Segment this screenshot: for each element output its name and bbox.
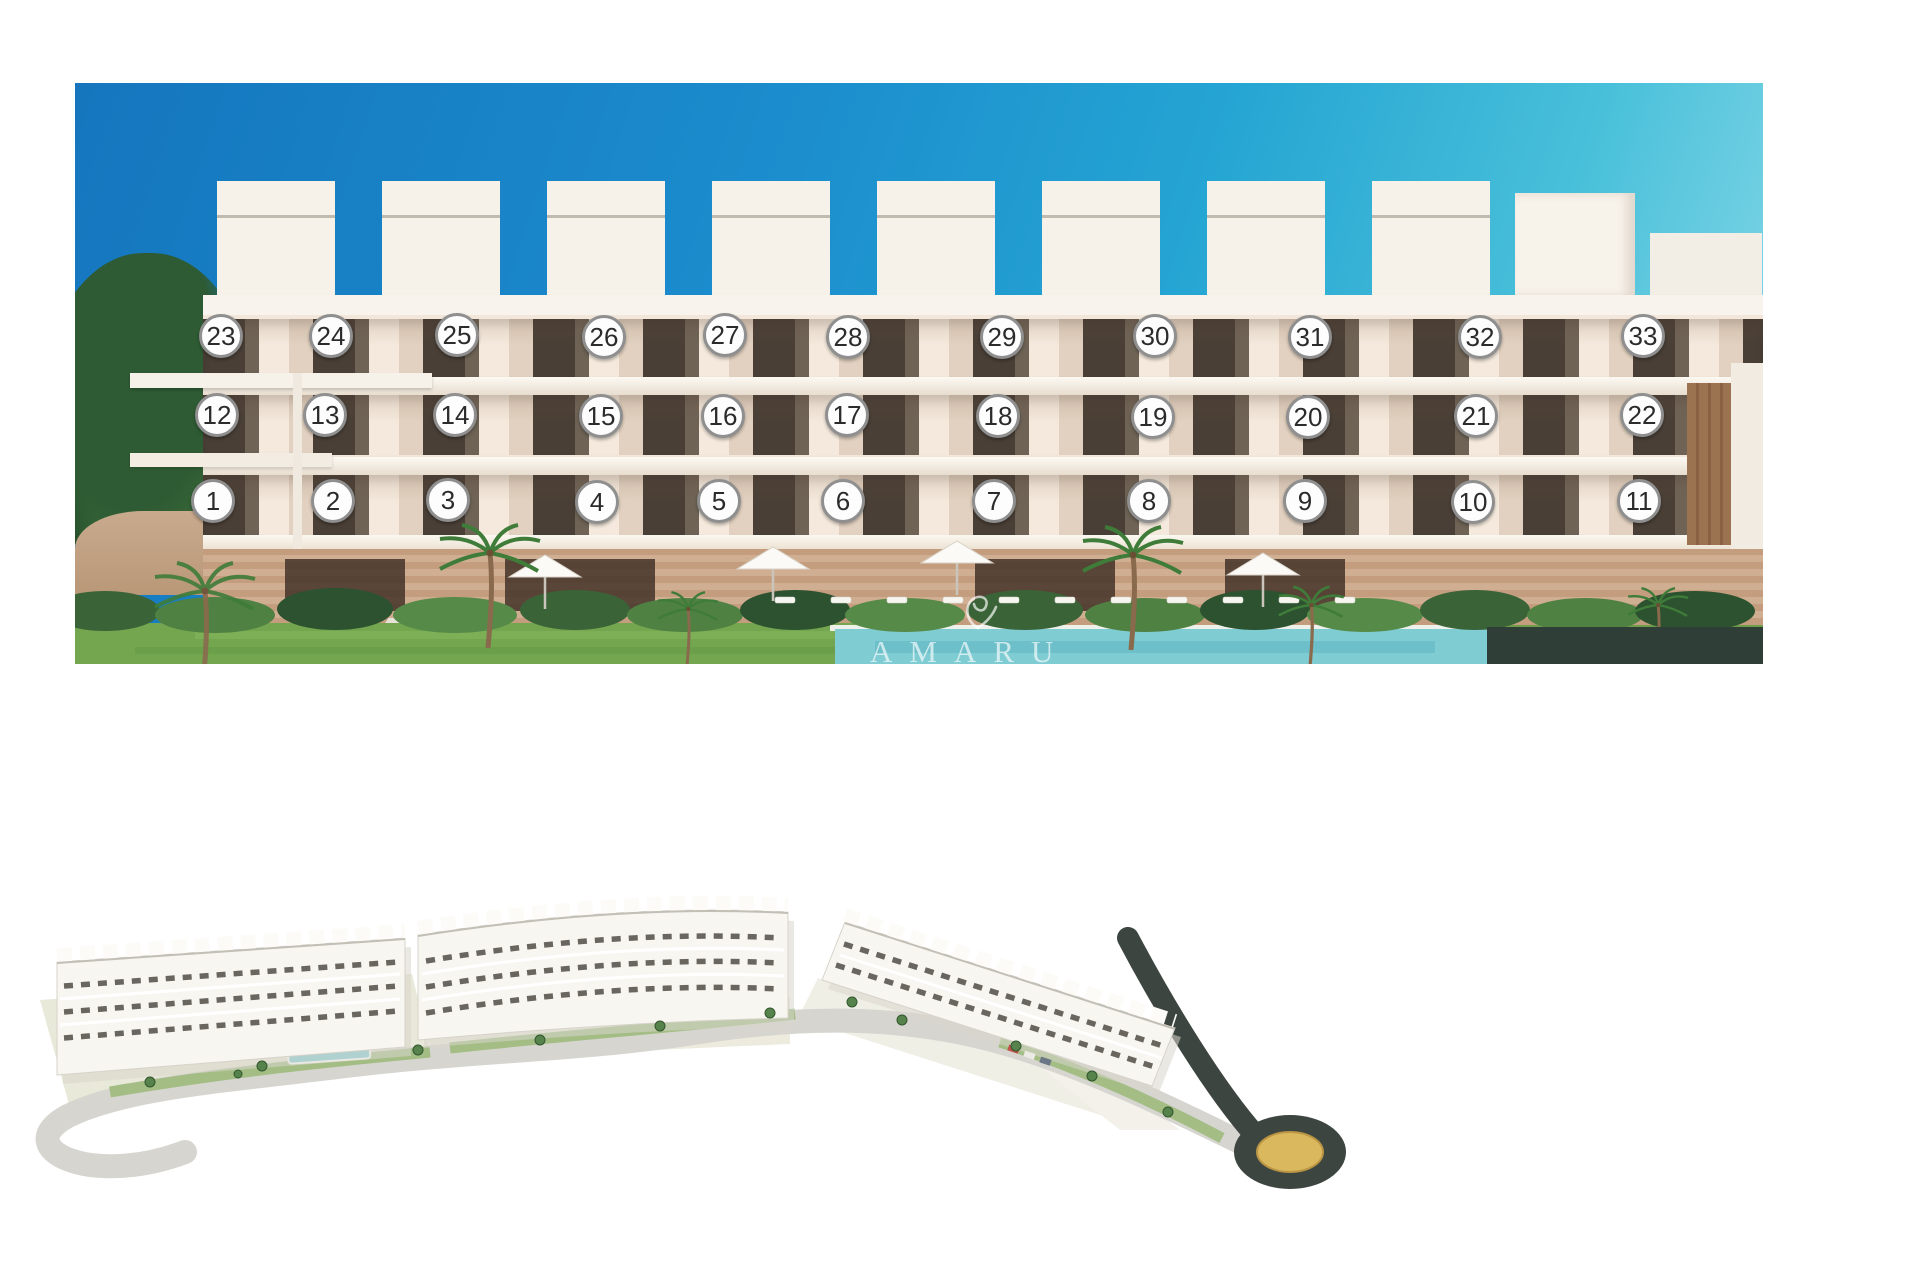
unit-number: 1 [206,488,220,514]
unit-number-badge[interactable]: 15 [579,394,623,438]
unit-number-badge[interactable]: 2 [311,479,355,523]
unit-number-badge[interactable]: 33 [1621,314,1665,358]
unit-number: 16 [709,403,738,429]
unit-number-badge[interactable]: 31 [1288,315,1332,359]
unit-number: 28 [834,324,863,350]
unit-number: 21 [1462,403,1491,429]
unit-number: 11 [1626,488,1653,514]
unit-number: 18 [984,403,1013,429]
unit-number-badge[interactable]: 10 [1451,480,1495,524]
unit-number: 5 [712,488,726,514]
unit-number: 9 [1298,488,1312,514]
unit-number: 32 [1466,324,1495,350]
unit-number: 22 [1628,402,1657,428]
unit-number-badge[interactable]: 27 [703,313,747,357]
unit-number-badge[interactable]: 11 [1617,479,1661,523]
unit-number-badge[interactable]: 13 [303,393,347,437]
unit-number: 14 [441,402,470,428]
unit-number: 30 [1141,323,1170,349]
unit-number: 7 [987,488,1001,514]
unit-number-badge[interactable]: 5 [697,479,741,523]
unit-number: 10 [1459,489,1488,515]
unit-number-badge[interactable]: 30 [1133,314,1177,358]
unit-number-badge[interactable]: 24 [309,314,353,358]
unit-number: 8 [1142,488,1156,514]
unit-number-badge[interactable]: 28 [826,315,870,359]
site-plan-render: BLOQUE 1BLOQUE 2BLOQUE 3 [0,820,1450,1240]
unit-number-badge[interactable]: 26 [582,315,626,359]
page: AMARU 1 2 3 4 5 6 7 8 9 10 [0,0,1920,1280]
unit-number: 15 [587,403,616,429]
dark-green-panel [1487,627,1763,664]
unit-number: 13 [311,402,340,428]
unit-number-badge[interactable]: 18 [976,394,1020,438]
unit-number-badge[interactable]: 21 [1454,394,1498,438]
unit-number-badge[interactable]: 25 [435,313,479,357]
unit-number: 17 [833,402,862,428]
unit-number: 19 [1139,404,1168,430]
unit-number: 25 [443,322,472,348]
unit-number: 24 [317,323,346,349]
unit-number-badge[interactable]: 3 [426,478,470,522]
unit-number: 29 [988,324,1017,350]
unit-number: 12 [203,402,232,428]
building-front-render: AMARU 1 2 3 4 5 6 7 8 9 10 [75,83,1763,664]
unit-number: 27 [711,322,740,348]
unit-number: 26 [590,324,619,350]
unit-number: 2 [326,488,340,514]
unit-number: 23 [207,323,236,349]
unit-number-badge[interactable]: 6 [821,479,865,523]
unit-number: 31 [1296,324,1325,350]
roundabout-center [1257,1132,1323,1172]
rooftop-railings [217,215,1507,218]
unit-number-badge[interactable]: 29 [980,315,1024,359]
unit-number-badge[interactable]: 9 [1283,479,1327,523]
unit-number-badge[interactable]: 32 [1458,315,1502,359]
unit-number-badge[interactable]: 22 [1620,393,1664,437]
unit-number-badge[interactable]: 1 [191,479,235,523]
unit-number-badge[interactable]: 20 [1286,395,1330,439]
unit-number-badge[interactable]: 17 [825,393,869,437]
unit-number-badge[interactable]: 7 [972,479,1016,523]
site-plan-drawing [0,820,1450,1240]
unit-number-badge[interactable]: 14 [433,393,477,437]
unit-number-badge[interactable]: 8 [1127,479,1171,523]
bloque2-building [418,903,794,1048]
unit-number-badge[interactable]: 19 [1131,395,1175,439]
unit-number-badge[interactable]: 12 [195,393,239,437]
unit-number: 3 [441,487,455,513]
unit-number: 4 [590,489,604,515]
garden-and-pool [75,223,1763,664]
unit-number-badge[interactable]: 23 [199,314,243,358]
unit-number: 6 [836,488,850,514]
unit-number: 33 [1629,323,1658,349]
unit-number: 20 [1294,404,1323,430]
unit-number-badge[interactable]: 4 [575,480,619,524]
unit-number-badge[interactable]: 16 [701,394,745,438]
